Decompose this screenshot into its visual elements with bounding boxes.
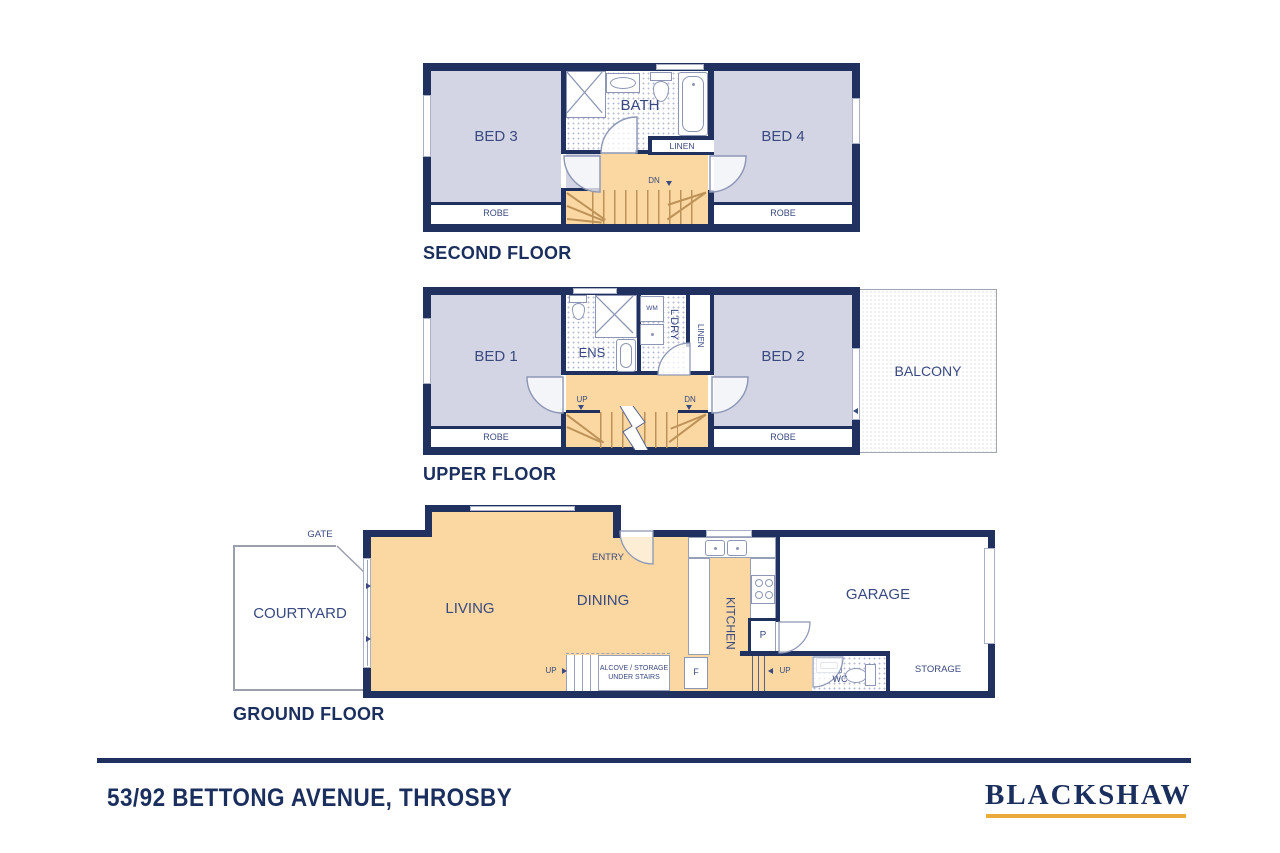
alcove-label-line1: ALCOVE / STORAGE — [600, 664, 668, 673]
alcove-storage: ALCOVE / STORAGE UNDER STAIRS — [598, 655, 670, 691]
wall-exterior — [363, 691, 995, 698]
cooktop-icon — [751, 575, 775, 604]
door-arc — [779, 622, 810, 653]
brand-underline — [986, 814, 1186, 818]
label-entry: ENTRY — [588, 552, 628, 564]
wall — [812, 651, 890, 656]
sliding-door-track — [367, 560, 368, 666]
stair-label-up: UP — [540, 666, 562, 677]
sink-icon — [727, 540, 747, 556]
wall-exterior — [752, 530, 780, 537]
room-label-courtyard: COURTYARD — [244, 606, 356, 622]
wall-exterior — [363, 530, 427, 537]
wall-exterior — [363, 668, 371, 694]
slider-arrow-icon — [366, 583, 371, 589]
kitchen-bench — [688, 558, 710, 655]
stair-label-up: UP — [774, 666, 796, 677]
label-gate: GATE — [300, 529, 340, 541]
fixture-label-fridge: F — [685, 658, 707, 688]
wall — [748, 618, 776, 621]
room-label-living: LIVING — [420, 600, 520, 618]
slider-arrow-icon — [366, 636, 371, 642]
wall-exterior — [363, 530, 371, 558]
floor-title-ground: GROUND FLOOR — [233, 704, 385, 725]
room-living-bay — [432, 512, 613, 539]
ground-floor-plan: F ALCOVE / STORAGE UNDER STAIRS GATE COU… — [0, 0, 1280, 853]
sink-icon — [705, 540, 725, 556]
label-storage: STORAGE — [910, 664, 966, 676]
window — [706, 530, 752, 537]
brand-logo: BLACKSHAW — [985, 779, 1192, 812]
alcove-label-line2: UNDER STAIRS — [608, 673, 660, 682]
address-text: 53/92 BETTONG AVENUE, THROSBY — [107, 784, 512, 813]
garage-door — [984, 548, 995, 644]
left-arrow-icon — [768, 668, 773, 674]
wall — [748, 620, 751, 653]
stair-treads — [566, 655, 598, 691]
wall — [776, 533, 780, 622]
wall-exterior — [653, 530, 706, 537]
wall — [886, 653, 890, 693]
fridge-space: F — [684, 657, 708, 689]
window — [470, 506, 575, 511]
room-label-garage: GARAGE — [828, 586, 928, 604]
label-pantry: P — [752, 628, 774, 644]
floor-plan-page: BED 3 BATH LINEN BED 4 ROBE ROBE DN SECO… — [0, 0, 1280, 853]
wall-exterior — [778, 530, 995, 537]
right-arrow-icon — [562, 668, 567, 674]
room-label-kitchen: KITCHEN — [719, 576, 741, 671]
room-label-dining: DINING — [553, 592, 653, 610]
stair-treads — [752, 656, 766, 691]
toilet-icon — [865, 664, 876, 686]
divider-line — [97, 758, 1191, 763]
room-label-wc: WC — [826, 674, 854, 686]
